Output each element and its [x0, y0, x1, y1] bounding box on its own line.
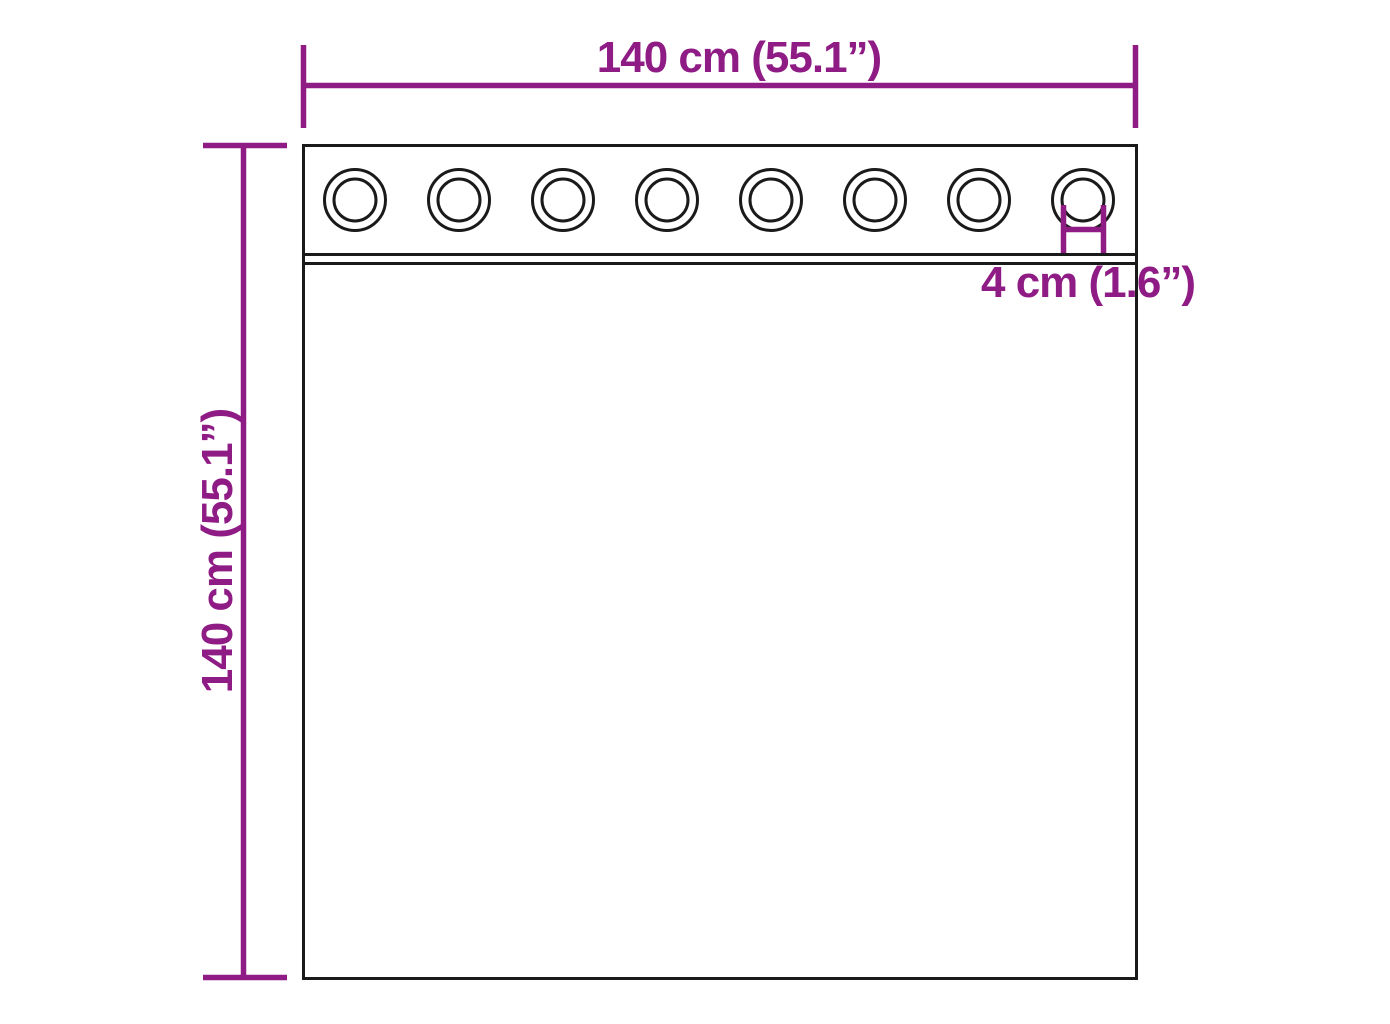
width-dimension-label: 140 cm (55.1”)	[597, 33, 881, 82]
curtain-dimension-diagram: 140 cm (55.1”) 140 cm (55.1”) 4 cm (1.6”…	[0, 0, 1390, 1024]
diagram-canvas: 140 cm (55.1”) 140 cm (55.1”) 4 cm (1.6”…	[0, 0, 1390, 1024]
height-dimension-label: 140 cm (55.1”)	[193, 409, 242, 693]
grommet-dimension-label: 4 cm (1.6”)	[981, 258, 1195, 307]
width-dimension: 140 cm (55.1”)	[301, 33, 1138, 128]
height-dimension: 140 cm (55.1”)	[193, 143, 287, 980]
